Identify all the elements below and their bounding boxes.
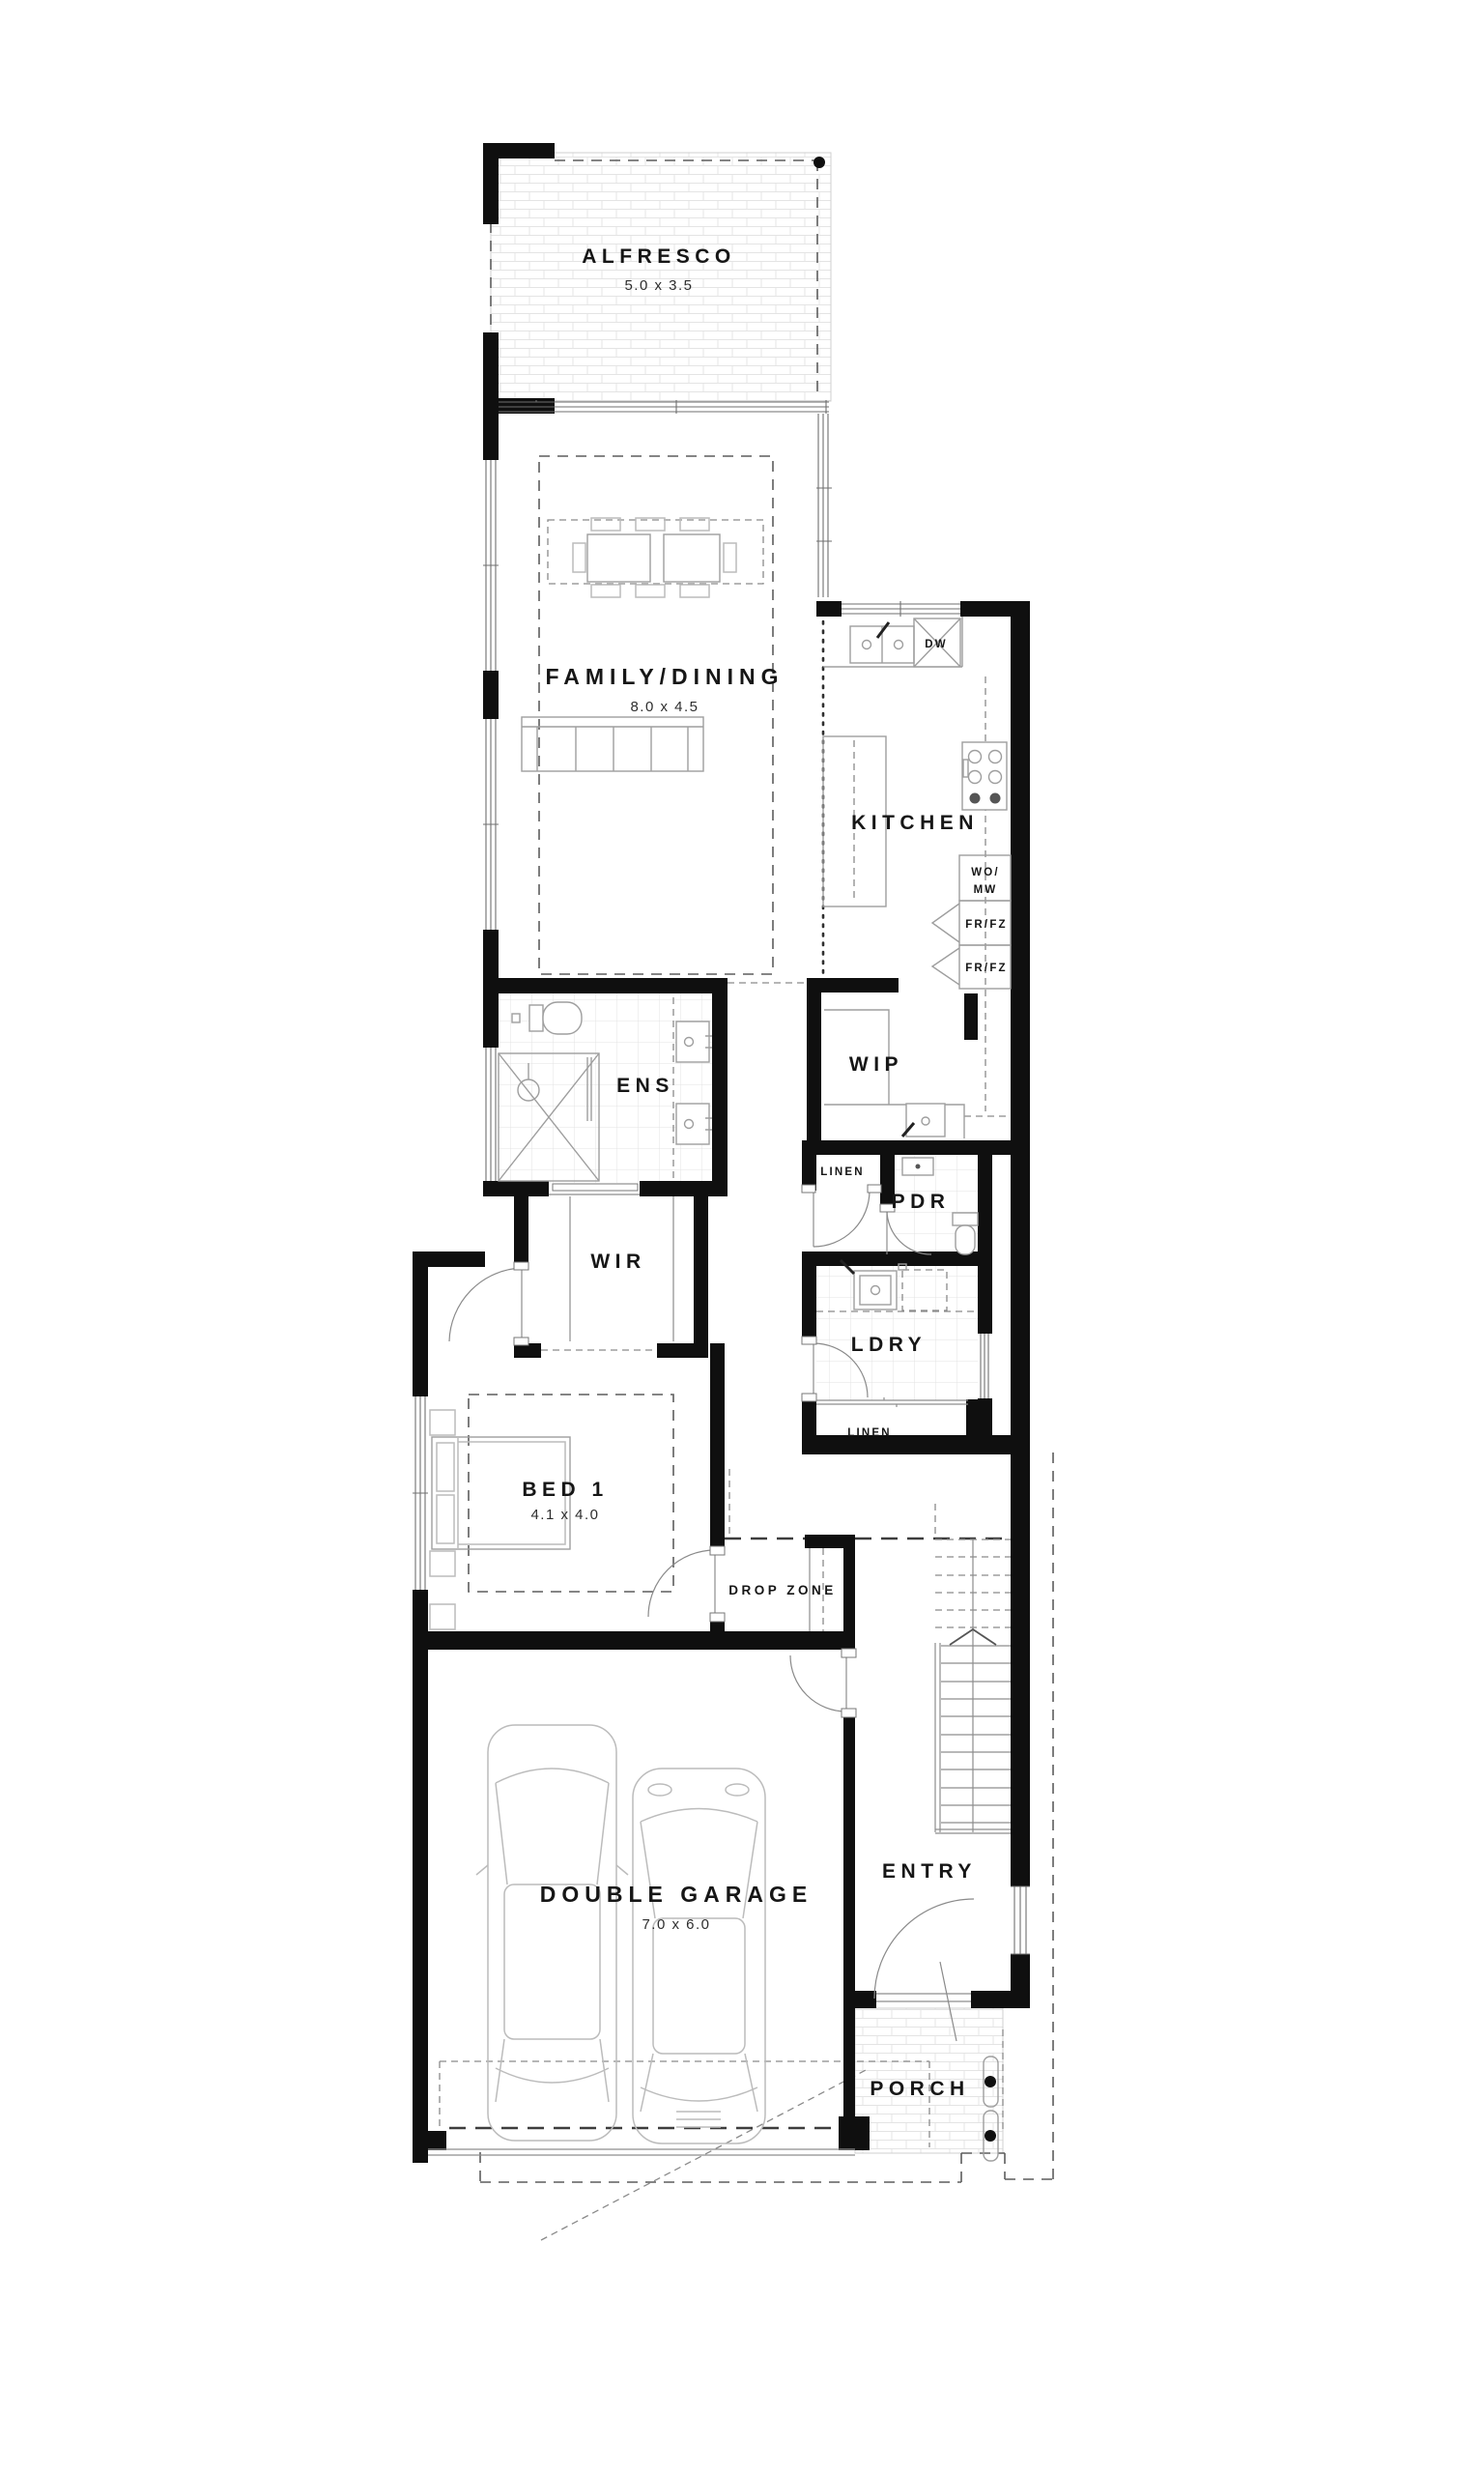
family-window-2 (483, 719, 499, 930)
ens-label: ENS (616, 1075, 674, 1097)
alfresco-label: ALFRESCO (582, 245, 736, 268)
garage-shoppers-door (790, 1649, 856, 1717)
family-ceiling-recess (539, 456, 773, 974)
linen-upper-label: LINEN (820, 1166, 865, 1178)
garage-label: DOUBLE GARAGE (540, 1882, 813, 1907)
dining-rug (548, 520, 763, 584)
cooktop-symbol (962, 742, 1007, 810)
kitchen-fixtures (823, 617, 1011, 989)
stairs-symbol (935, 1539, 1011, 1833)
vanity-basin-symbol-2 (676, 1104, 712, 1144)
kitchen-label: KITCHEN (851, 812, 979, 834)
dining-setting-symbol (573, 518, 736, 597)
fridge-label-bottom: FR/FZ (965, 963, 1008, 974)
linen-upper-door (802, 1185, 881, 1247)
family-alfresco-sliders (499, 400, 829, 414)
wall-oven-label-1: WO/ (971, 867, 1000, 878)
kitchen-sink-symbol (850, 622, 914, 663)
bed1-label: BED 1 (522, 1479, 608, 1501)
sofa-symbol (522, 717, 703, 771)
drop-zone-label: DROP ZONE (728, 1583, 837, 1597)
pdr-basin-symbol (902, 1158, 933, 1175)
garage-dims: 7.0 x 6.0 (642, 1916, 710, 1933)
car-symbol-1 (476, 1725, 628, 2141)
alfresco-post (813, 157, 825, 168)
ldry-window (978, 1334, 992, 1398)
vanity-basin-symbol-1 (676, 1021, 712, 1062)
bed1-window (413, 1396, 428, 1590)
wir-label: WIR (590, 1251, 645, 1273)
entry-label: ENTRY (882, 1860, 977, 1883)
entry-window (1011, 1886, 1030, 1954)
car-symbol-2 (633, 1769, 765, 2143)
family-dining-label: FAMILY/DINING (545, 664, 784, 689)
garage-opening (428, 2149, 855, 2155)
porch-label: PORCH (870, 2078, 969, 2100)
toilet-symbol-pdr (953, 1213, 978, 1254)
dishwasher-label: DW (925, 639, 948, 650)
wall-oven-label-2: MW (974, 884, 998, 896)
linen-lower-label: LINEN (847, 1427, 892, 1439)
fridge-label-top: FR/FZ (965, 919, 1008, 931)
bed1-door (648, 1546, 725, 1622)
pdr-label: PDR (892, 1191, 951, 1213)
ens-window (483, 1048, 499, 1181)
family-east-window (816, 414, 832, 597)
family-window-1 (483, 460, 499, 671)
ldry-label: LDRY (851, 1334, 927, 1356)
floor-plan: ALFRESCO 5.0 x 3.5 FAMILY/DINING 8.0 x 4… (0, 0, 1484, 2474)
bed1-dims: 4.1 x 4.0 (530, 1507, 599, 1523)
wip-sink-symbol (902, 1104, 945, 1136)
kitchen-window (842, 601, 960, 617)
wir-door (449, 1262, 528, 1345)
alfresco-dims: 5.0 x 3.5 (624, 277, 693, 294)
wip-label: WIP (849, 1053, 903, 1076)
wir-robe-symbol (541, 1196, 673, 1350)
ens-cavity-slider (549, 1184, 640, 1194)
family-dining-dims: 8.0 x 4.5 (630, 699, 699, 715)
